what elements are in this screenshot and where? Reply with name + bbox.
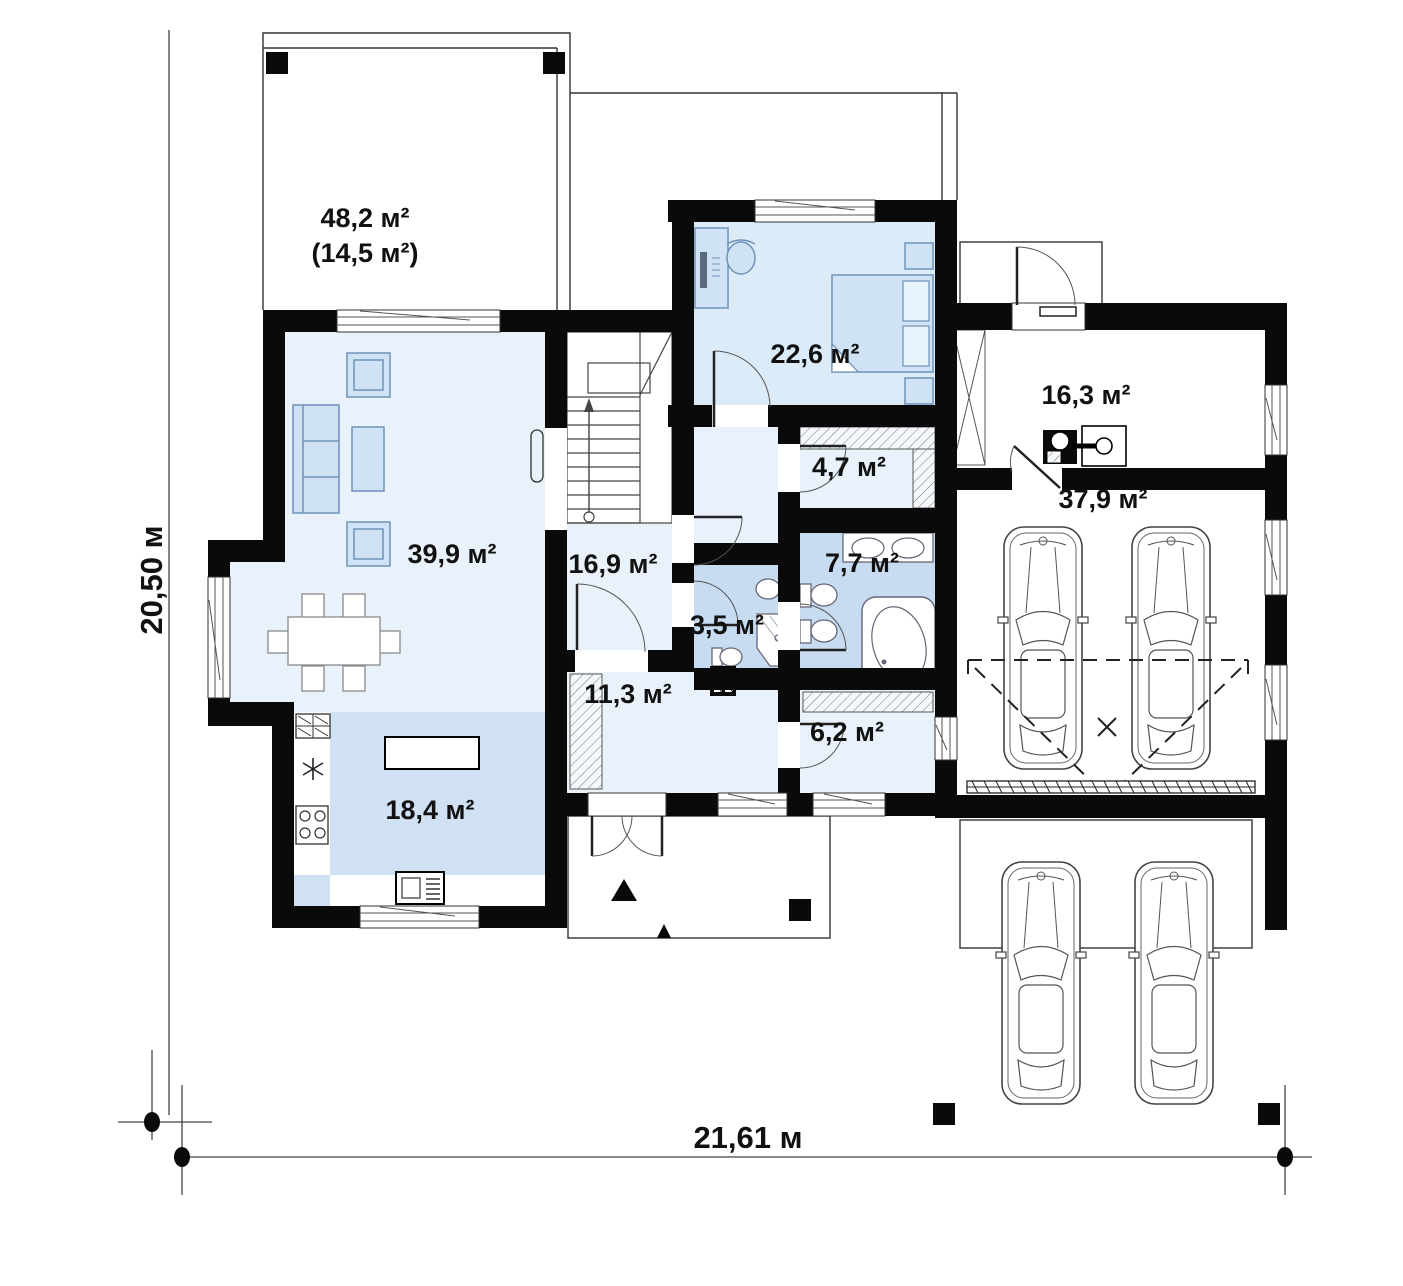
garage-door [967, 781, 1255, 793]
office-chair-icon [727, 242, 755, 274]
monitor-icon [700, 252, 707, 288]
living-room-area-label: 39,9 м² [407, 539, 496, 569]
outdoor-column [933, 1103, 955, 1125]
corridor-floor [694, 427, 778, 543]
window [935, 717, 957, 760]
pillow-icon [903, 326, 929, 366]
outdoor-column [1258, 1103, 1280, 1125]
washbasin-icon [712, 648, 742, 666]
window [337, 310, 500, 332]
closet-icon [913, 449, 935, 508]
car-in-garage [998, 527, 1088, 769]
window [208, 577, 230, 698]
desk-icon [695, 228, 728, 308]
car-on-driveway [1129, 862, 1219, 1104]
bathroom-area-label: 7,7 м² [825, 548, 899, 578]
entrance-arrow-icon [611, 879, 637, 901]
porch-column [789, 899, 811, 921]
chair-icon [302, 594, 324, 619]
chair-icon [302, 666, 324, 691]
entrance-double-door [588, 793, 666, 856]
chair-icon [343, 666, 365, 691]
back-door [1012, 247, 1085, 330]
car-on-driveway [996, 862, 1086, 1104]
toilet-icon [800, 584, 837, 607]
entry-hall-area-label: 11,3 м² [584, 679, 672, 709]
step-arrow-icon [657, 924, 671, 938]
terrace-inner-line [263, 48, 557, 310]
boiler-room-area-label: 16,3 м² [1041, 380, 1130, 410]
terrace-secondary-area-label: (14,5 м²) [312, 238, 419, 268]
coffee-table-icon [352, 427, 384, 491]
wardrobe-area-label: 4,7 м² [812, 452, 886, 482]
window [718, 793, 787, 816]
vertical-dimension-label: 20,50 м [134, 525, 169, 634]
x-mark [1098, 718, 1116, 736]
bedroom-area-label: 22,6 м² [770, 339, 859, 369]
kitchen-area-label: 18,4 м² [385, 795, 474, 825]
nightstand-icon [905, 243, 933, 269]
horizontal-dimension-label: 21,61 м [693, 1120, 802, 1155]
hall-area-label: 16,9 м² [568, 549, 657, 579]
floor-plan-drawing: 48,2 м² (14,5 м²) 39,9 м² 22,6 м² 16,3 м… [0, 0, 1403, 1286]
chair-icon [343, 594, 365, 619]
sofa-icon [293, 405, 339, 513]
closet-icon [803, 692, 933, 712]
nightstand-icon [905, 378, 933, 404]
terrace-column [543, 52, 565, 74]
kitchen-island-icon [385, 737, 479, 769]
utility-room-area-label: 6,2 м² [810, 717, 884, 747]
window [1265, 385, 1287, 455]
pillow-icon [903, 281, 929, 321]
bidet-icon [800, 620, 837, 643]
terrace-area-label: 48,2 м² [320, 203, 409, 233]
staircase [567, 332, 672, 523]
window [1265, 665, 1287, 740]
floor-plan-canvas: 48,2 м² (14,5 м²) 39,9 м² 22,6 м² 16,3 м… [0, 0, 1403, 1286]
wc-area-label: 3,5 м² [690, 610, 764, 640]
window [360, 906, 479, 928]
window [813, 793, 885, 816]
window [1265, 520, 1287, 595]
window [755, 200, 875, 222]
dining-table-icon [288, 617, 380, 665]
terrace-outline [263, 33, 570, 310]
back-porch-outline [960, 242, 1102, 307]
terrace-column [266, 52, 288, 74]
car-in-garage [1126, 527, 1216, 769]
boiler-equipment [1043, 426, 1126, 466]
roof-overhang-line [570, 93, 957, 200]
porch-marks [611, 879, 671, 938]
garage-area-label: 37,9 м² [1058, 484, 1147, 514]
